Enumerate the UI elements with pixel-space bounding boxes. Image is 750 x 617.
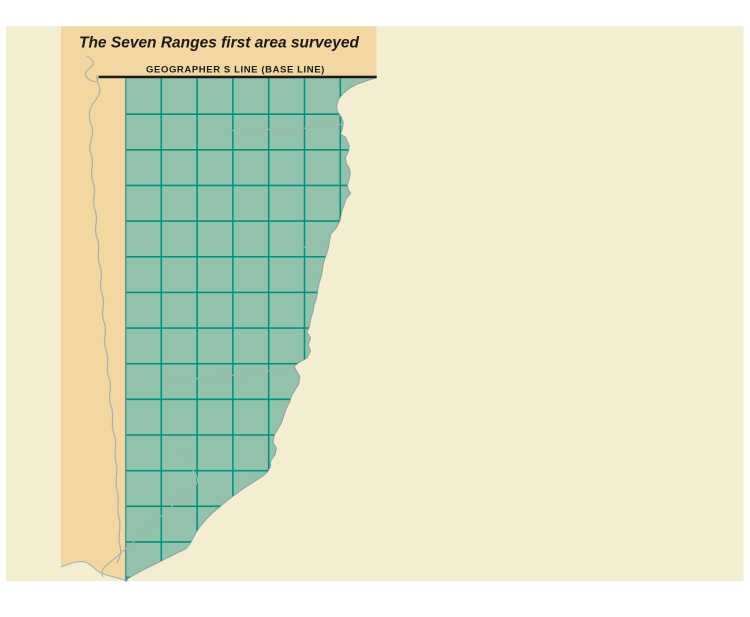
svg-text:The Seven Ranges first area su: The Seven Ranges first area surveyed — [79, 35, 360, 52]
svg-text:GEOGRAPHER S LINE (BASE LINE): GEOGRAPHER S LINE (BASE LINE) — [146, 64, 325, 75]
